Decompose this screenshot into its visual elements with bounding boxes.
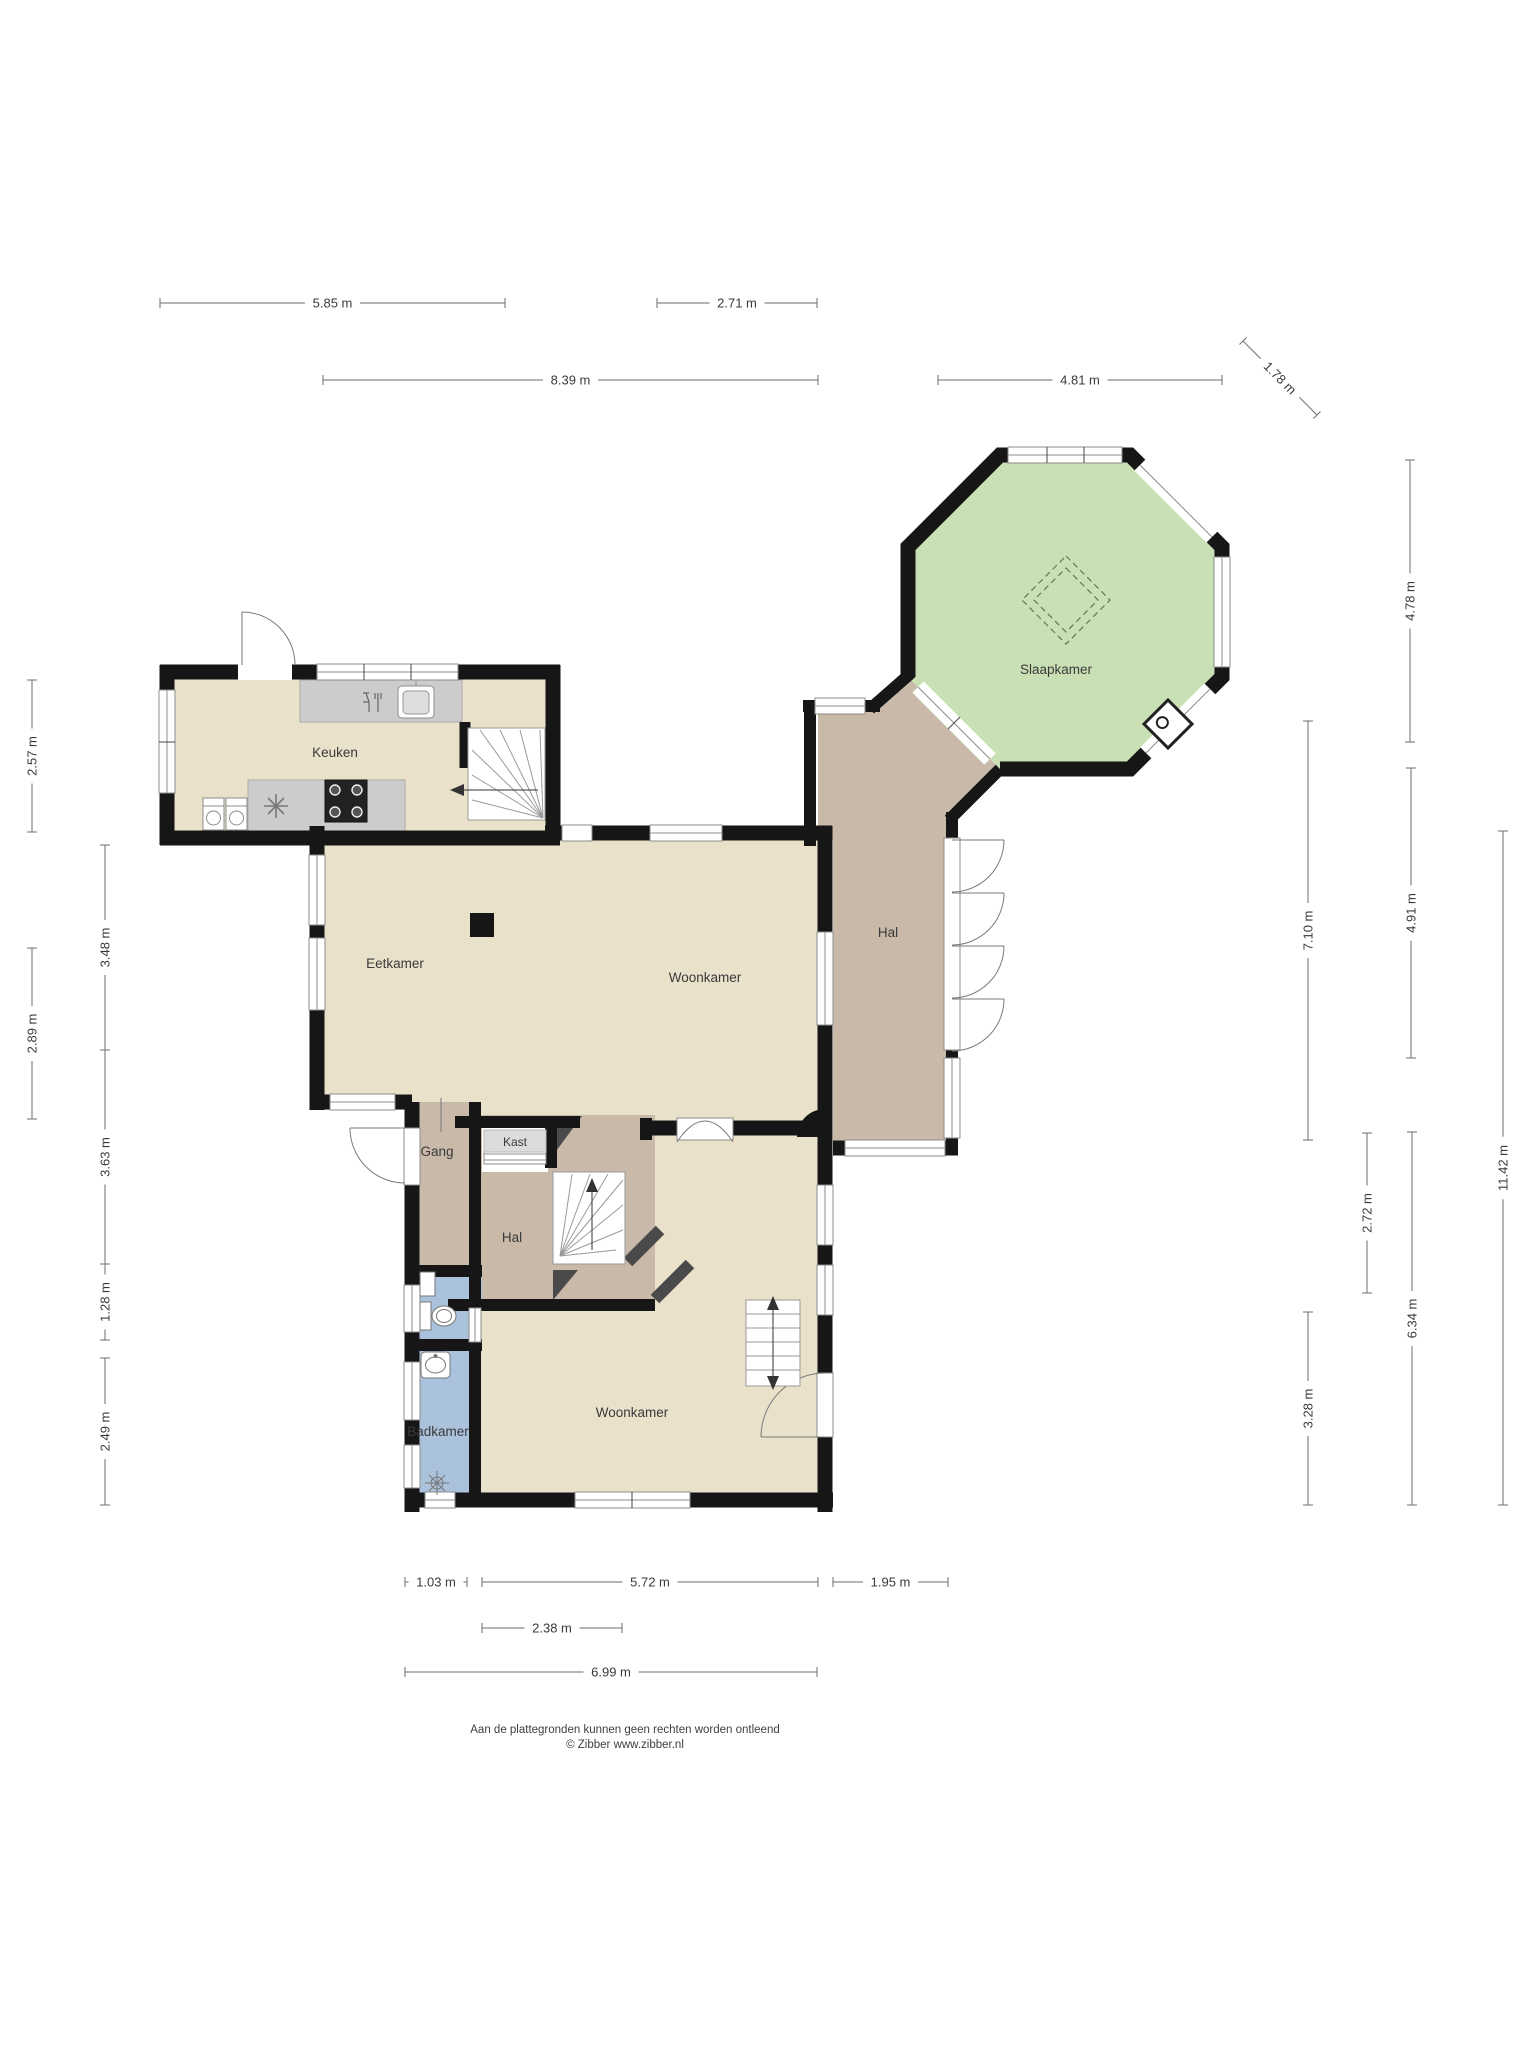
measurement-left-2-49: 2.49 m [97, 1358, 113, 1505]
copyright-text: © Zibber www.zibber.nl [566, 1739, 684, 1751]
window [404, 1285, 420, 1332]
measurement-right-4-91: 4.91 m [1403, 768, 1419, 1058]
door-opening [238, 664, 292, 680]
room-label-keuken: Keuken [312, 745, 358, 760]
measurement-right-4-78: 4.78 m [1402, 460, 1418, 742]
dimension-label: 1.28 m [98, 1282, 113, 1322]
floor-plan-canvas: Keuken Eetkamer Woonkamer Hal Slaapkamer… [0, 0, 1536, 2048]
room-label-woonkamer2: Woonkamer [596, 1405, 669, 1420]
measurement-right-6-34: 6.34 m [1404, 1132, 1420, 1505]
washbasin-icon [421, 1352, 450, 1378]
room-label-kast: Kast [503, 1135, 528, 1149]
door-opening [817, 1373, 833, 1437]
dimension-label: 4.91 m [1404, 893, 1419, 933]
measurement-left-3-48: 3.48 m [97, 845, 113, 1050]
measurement-bot-1-95: 1.95 m [833, 1574, 948, 1590]
measurement-right-7-10: 7.10 m [1300, 721, 1316, 1140]
dishwasher-icon [358, 688, 386, 715]
measurement-left-2-57: 2.57 m [24, 680, 40, 832]
dimension-label: 3.48 m [98, 928, 113, 968]
dimension-label: 2.38 m [532, 1621, 572, 1636]
window [330, 1094, 395, 1110]
dimension-label: 2.49 m [98, 1412, 113, 1452]
window [1008, 447, 1122, 463]
measurement-right-11-42: 11.42 m [1495, 831, 1511, 1505]
cabinet [420, 1272, 435, 1296]
measurement-diag-1-78: 1.78 m [1239, 337, 1320, 418]
measurement-right-2-72: 2.72 m [1359, 1133, 1375, 1293]
door-arc [242, 612, 295, 665]
dimension-label: 2.57 m [25, 736, 40, 776]
measurement-bot-1-03: 1.03 m [405, 1574, 467, 1590]
measurement-top-4-81: 4.81 m [938, 372, 1222, 388]
door-arc [350, 1128, 405, 1183]
stairs-winding [553, 1172, 625, 1264]
window [159, 690, 175, 793]
stove-icon [325, 780, 367, 822]
footer: Aan de plattegronden kunnen geen rechten… [470, 1724, 779, 1751]
arch-opening [677, 1118, 733, 1142]
measurement-right-3-28: 3.28 m [1300, 1312, 1316, 1505]
measurement-bot-6-99: 6.99 m [405, 1664, 817, 1680]
door-opening [404, 1128, 420, 1185]
dimension-label: 7.10 m [1301, 911, 1316, 951]
dimension-label: 2.89 m [25, 1014, 40, 1054]
dimension-label: 3.28 m [1301, 1389, 1316, 1429]
floor-plan-page: Keuken Eetkamer Woonkamer Hal Slaapkamer… [0, 0, 1536, 2048]
room-label-slaapkamer: Slaapkamer [1020, 662, 1093, 677]
window [650, 825, 722, 841]
dimension-label: 4.81 m [1060, 373, 1100, 388]
dimension-label: 1.95 m [871, 1575, 911, 1590]
window [1214, 557, 1230, 667]
measurement-bot-5-72: 5.72 m [482, 1574, 818, 1590]
dimension-label: 3.63 m [98, 1137, 113, 1177]
door-opening [944, 838, 960, 1050]
dimension-label: 5.72 m [630, 1575, 670, 1590]
room-label-hal: Hal [878, 925, 898, 940]
dimension-label: 11.42 m [1496, 1145, 1511, 1191]
measurement-top-8-39: 8.39 m [323, 372, 818, 388]
window [845, 1140, 945, 1156]
window [317, 664, 458, 680]
dimension-label: 6.34 m [1405, 1299, 1420, 1339]
measurement-bot-2-38: 2.38 m [482, 1620, 622, 1636]
measurement-left-2-89: 2.89 m [24, 948, 40, 1119]
room-label-eetkamer: Eetkamer [366, 956, 424, 971]
window [815, 698, 865, 714]
measurement-left-3-63: 3.63 m [97, 1050, 113, 1264]
sink-icon [398, 681, 434, 718]
window [944, 1058, 960, 1138]
room-label-woonkamer: Woonkamer [669, 970, 742, 985]
dimension-label: 1.78 m [1261, 359, 1300, 398]
room-eetkamer-woonkamer-floor [317, 833, 825, 1137]
measurement-top-5-85: 5.85 m [160, 295, 505, 311]
dimension-label: 8.39 m [551, 373, 591, 388]
window [817, 932, 833, 1025]
measurement-top-2-71: 2.71 m [657, 295, 817, 311]
column [470, 913, 494, 937]
disclaimer-text: Aan de plattegronden kunnen geen rechten… [470, 1724, 779, 1736]
dimension-label: 4.78 m [1403, 581, 1418, 621]
dimension-label: 6.99 m [591, 1665, 631, 1680]
dimension-label: 5.85 m [313, 296, 353, 311]
dimension-label: 2.71 m [717, 296, 757, 311]
room-label-gang: Gang [420, 1144, 453, 1159]
room-label-badkamer: Badkamer [407, 1424, 469, 1439]
door-opening [562, 825, 592, 841]
dimension-label: 2.72 m [1360, 1193, 1375, 1233]
stairs-straight [746, 1296, 800, 1390]
dimension-label: 1.03 m [416, 1575, 456, 1590]
room-label-hal2: Hal [502, 1230, 522, 1245]
measurement-left-1-28: 1.28 m [97, 1264, 113, 1340]
